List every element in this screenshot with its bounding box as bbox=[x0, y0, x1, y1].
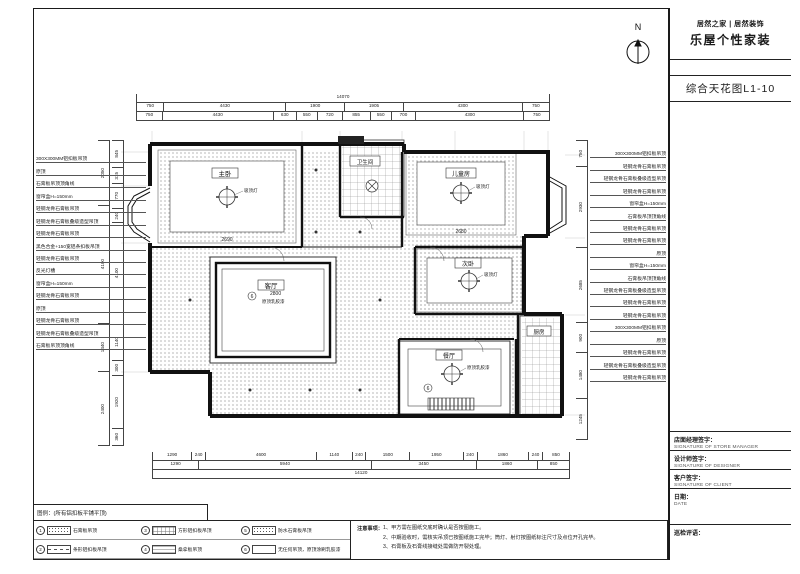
dimension-segment: 900 bbox=[576, 322, 587, 352]
legend-item: 1 石膏板吊顶 bbox=[34, 521, 139, 540]
legend-number: 2 bbox=[36, 545, 45, 554]
dimension-segment: 3450 bbox=[371, 461, 476, 469]
signature-box: 店面经理签字： SIGNATURE OF STORE MANAGER bbox=[670, 431, 791, 450]
dimension-segment: 2685 bbox=[576, 247, 587, 322]
room-dim: 2690 bbox=[221, 237, 232, 243]
dimension-segment: 700 bbox=[391, 112, 415, 120]
legend: 1 石膏板吊顶 2 条形铝扣板吊顶 3 方形铝扣板吊顶 4 桑拿板吊顶 5 bbox=[34, 521, 351, 559]
ceiling-labels-right: 300X300MM铝扣板吊顶轻钢龙骨石膏板吊顶轻钢龙骨石膏板叠级造型吊顶轻钢龙骨… bbox=[590, 146, 666, 382]
title-block-blank-area bbox=[670, 102, 791, 431]
legend-title: 图例：(所有铝扣板平铺平顶) bbox=[33, 504, 208, 521]
ceiling-label: 黑色合金+150宽铝条扣板吊顶 bbox=[36, 238, 146, 250]
signature-label-cn: 设计师签字： bbox=[674, 454, 787, 463]
ceiling-label: 轻钢龙骨石膏板吊顶 bbox=[590, 183, 666, 195]
legend-swatch-icon bbox=[252, 545, 276, 554]
legend-label: 桑拿板吊顶 bbox=[178, 546, 202, 553]
dimension-segment: 4300 bbox=[403, 103, 522, 111]
dimension-segment: 5940 bbox=[198, 461, 370, 469]
dimension-segment: 550 bbox=[370, 112, 391, 120]
legend-swatch-icon bbox=[47, 545, 71, 554]
note-line: 2、中期验收时，需核实吊顶已按图纸施工完毕；筒灯、射灯按图纸标注尺寸及点位开孔完… bbox=[383, 534, 663, 544]
logo: 居然之家 | 居然装饰 乐屋个性家装 bbox=[670, 8, 791, 60]
dim-chain-row: 129024046001140240150019502401860240850 bbox=[152, 452, 570, 461]
ceiling-label: 轻钢龙骨石膏板吊顶 bbox=[590, 295, 666, 307]
signature-boxes: 店面经理签字： SIGNATURE OF STORE MANAGER 设计师签字… bbox=[670, 431, 791, 560]
dimension-segment: 14070 bbox=[136, 94, 550, 102]
room-name: 主卧 bbox=[219, 169, 233, 178]
dimension-segment: 300 bbox=[112, 360, 123, 375]
signature-box: 设计师签字： SIGNATURE OF DESIGNER bbox=[670, 450, 791, 469]
dim-total-row: 14120 bbox=[152, 470, 570, 479]
dimension-segment: 240 bbox=[191, 452, 205, 460]
room-name: 厨房 bbox=[533, 328, 545, 336]
ceiling-label: 300X300MM铝扣板吊顶 bbox=[36, 151, 146, 163]
dimension-segment: 750 bbox=[136, 103, 163, 111]
signature-box: 客户签字： SIGNATURE OF CLIENT bbox=[670, 469, 791, 488]
legend-label: 方形铝扣板吊顶 bbox=[178, 527, 212, 534]
ceiling-label: 原顶 bbox=[36, 163, 146, 175]
legend-number: 4 bbox=[141, 545, 150, 554]
notes-heading: 注意事项： bbox=[357, 525, 383, 535]
signature-label-cn: 客户签字： bbox=[674, 473, 787, 482]
dimension-segment: 1140 bbox=[316, 452, 352, 460]
legend-swatch-icon bbox=[47, 526, 71, 535]
dimensions-right: 7502930268590014801245 bbox=[576, 140, 588, 440]
dim-chain-row: 7504430190019054300750 bbox=[136, 103, 550, 112]
dimension-segment: 360 bbox=[112, 428, 123, 446]
signature-label-cn: 日期： bbox=[674, 492, 787, 501]
dimension-segment: 4430 bbox=[162, 112, 273, 120]
signature-label-en: DATE bbox=[674, 502, 787, 507]
signature-label-cn: 店面经理签字： bbox=[674, 435, 787, 444]
ceiling-label: 窗帘盒H=150mm bbox=[36, 275, 146, 287]
legend-item: 4 桑拿板吊顶 bbox=[139, 540, 239, 559]
dimensions-bottom: 129024046001140240150019502401860240850 … bbox=[152, 452, 570, 479]
dim-chain-row: 1290594034501860850 bbox=[152, 461, 570, 470]
lamp-label: 吸顶灯 bbox=[484, 271, 498, 278]
lamp-label: 吸顶灯 bbox=[476, 183, 490, 190]
ceiling-label: 窗帘盒H=150mm bbox=[590, 196, 666, 208]
dimension-segment: 1950 bbox=[409, 452, 462, 460]
dimension-segment: 750 bbox=[522, 103, 550, 111]
ceiling-label: 轻钢龙骨石膏板吊顶 bbox=[36, 313, 146, 325]
ceiling-label: 反光灯槽 bbox=[36, 263, 146, 275]
room-name: 次卧 bbox=[462, 260, 474, 268]
ceiling-label: 轻钢龙骨石膏板吊顶 bbox=[590, 370, 666, 382]
ceiling-label: 轻钢龙骨石膏板吊顶 bbox=[36, 201, 146, 213]
dimension-segment: 4300 bbox=[415, 112, 523, 120]
compass-needle-icon bbox=[635, 40, 641, 64]
dimension-segment: 1245 bbox=[576, 398, 587, 440]
dimension-segment: 1290 bbox=[152, 452, 191, 460]
signature-box: 巡检评语： bbox=[670, 524, 791, 560]
ceiling-label: 轻钢龙骨石膏板叠级造型吊顶 bbox=[590, 171, 666, 183]
ceiling-label: 轻钢龙骨石膏板叠级造型吊顶 bbox=[36, 325, 146, 337]
legend-label: 防水石膏板吊顶 bbox=[278, 527, 312, 534]
ceiling-label: 轻钢龙骨石膏板吊顶 bbox=[36, 251, 146, 263]
legend-number: 6 bbox=[241, 545, 250, 554]
legend-item: 6 无任何吊顶，原顶涂刷乳胶漆 bbox=[239, 540, 350, 559]
dimension-segment: 4600 bbox=[205, 452, 316, 460]
legend-label: 条形铝扣板吊顶 bbox=[73, 546, 107, 553]
ceiling-label: 原顶 bbox=[36, 300, 146, 312]
ceiling-label: 原顶 bbox=[590, 332, 666, 344]
radiator-icon bbox=[428, 398, 474, 410]
exhaust-fan-icon bbox=[366, 180, 378, 192]
ceiling-label: 原顶 bbox=[590, 245, 666, 257]
legend-label: 石膏板吊顶 bbox=[73, 527, 97, 534]
legend-label: 无任何吊顶，原顶涂刷乳胶漆 bbox=[278, 546, 340, 553]
dimension-segment: 2930 bbox=[576, 166, 587, 247]
dimension-segment: 750 bbox=[523, 112, 550, 120]
legend-swatch-icon bbox=[252, 526, 276, 535]
dimension-segment: 240 bbox=[463, 452, 477, 460]
dimension-segment: 750 bbox=[136, 112, 162, 120]
dimension-segment: 1920 bbox=[112, 375, 123, 428]
dimension-segment: 630 bbox=[273, 112, 296, 120]
ceiling-label: 轻钢龙骨石膏板吊顶 bbox=[36, 288, 146, 300]
legend-number: 5 bbox=[241, 526, 250, 535]
north-label: N bbox=[635, 22, 642, 32]
room-dim: 2680 bbox=[455, 229, 466, 235]
ceiling-label: 轻钢龙骨石膏板叠级造型吊顶 bbox=[590, 283, 666, 295]
ceiling-hatch-areas bbox=[152, 140, 562, 416]
room-dim: 2800 bbox=[270, 291, 281, 297]
ceiling-labels-left: 300X300MM铝扣板吊顶原顶石膏板吊顶顶角线窗帘盒H=150mm轻钢龙骨石膏… bbox=[36, 151, 146, 350]
north-arrow: N bbox=[622, 20, 654, 76]
dimension-segment: 2400 bbox=[98, 371, 109, 446]
dimension-segment: 14120 bbox=[152, 470, 570, 478]
dim-chain-row: 75044306305507208555507004300750 bbox=[136, 112, 550, 121]
ceiling-label: 轻钢龙骨石膏板吊顶 bbox=[590, 307, 666, 319]
ceiling-label: 300X300MM铝扣板吊顶 bbox=[590, 320, 666, 332]
dimension-segment: 1860 bbox=[476, 461, 538, 469]
floor-plan-canvas: 主卧 卫生间 儿童房 次卧 客厅 餐厅 厨房 吸顶灯 吸顶灯 吸顶灯 原顶乳胶漆… bbox=[118, 128, 623, 468]
signature-box: 日期： DATE bbox=[670, 488, 791, 524]
legend-item: 5 防水石膏板吊顶 bbox=[239, 521, 350, 540]
ceiling-label: 窗帘盒H=150mm bbox=[590, 258, 666, 270]
ceiling-label: 轻钢龙骨石膏板吊顶 bbox=[36, 226, 146, 238]
ceiling-label: 轻钢龙骨石膏板叠级造型吊顶 bbox=[36, 213, 146, 225]
dimension-segment: 4430 bbox=[163, 103, 285, 111]
legend-number: 3 bbox=[141, 526, 150, 535]
dimension-segment: 1290 bbox=[152, 461, 198, 469]
dimension-segment: 850 bbox=[542, 452, 570, 460]
note-line: 1、甲方需在图纸交底时确认是否按图施工。 bbox=[383, 524, 663, 534]
drawing-title: 综合天花图L1-10 bbox=[670, 76, 791, 102]
signature-label-cn: 巡检评语： bbox=[674, 528, 787, 537]
title-block-spacer-box bbox=[670, 60, 791, 76]
ceiling-label: 石膏板吊顶顶角线 bbox=[36, 338, 146, 350]
dimension-segment: 1900 bbox=[285, 103, 344, 111]
legend-swatch-icon bbox=[152, 545, 176, 554]
ceiling-label: 轻钢龙骨石膏板叠级造型吊顶 bbox=[590, 357, 666, 369]
ceiling-label: 轻钢龙骨石膏板吊顶 bbox=[590, 221, 666, 233]
legend-ref-marker: 6 bbox=[251, 294, 254, 300]
room-name: 卫生间 bbox=[357, 158, 374, 166]
notes: 注意事项： 1、甲方需在图纸交底时确认是否按图施工。2、中期验收时，需核实吊顶已… bbox=[351, 521, 667, 559]
legend-ref-marker: 6 bbox=[427, 386, 430, 392]
ceiling-note: 原顶乳胶漆 bbox=[467, 364, 490, 371]
drawing-sheet: N bbox=[0, 0, 800, 574]
brand-logo-text: 居然之家 | 居然装饰 bbox=[697, 19, 764, 29]
ceiling-label: 轻钢龙骨石膏板吊顶 bbox=[590, 158, 666, 170]
ceiling-label: 石膏板吊顶顶角线 bbox=[590, 208, 666, 220]
title-block: 居然之家 | 居然装饰 乐屋个性家装 综合天花图L1-10 店面经理签字： SI… bbox=[668, 8, 791, 560]
dimension-segment: 855 bbox=[342, 112, 370, 120]
room-name: 儿童房 bbox=[452, 170, 470, 178]
legend-item: 3 方形铝扣板吊顶 bbox=[139, 521, 239, 540]
ceiling-label: 300X300MM铝扣板吊顶 bbox=[590, 146, 666, 158]
ceiling-label: 轻钢龙骨石膏板吊顶 bbox=[590, 345, 666, 357]
dimension-segment: 750 bbox=[576, 140, 587, 166]
notes-lines: 1、甲方需在图纸交底时确认是否按图施工。2、中期验收时，需核实吊顶已按图纸施工完… bbox=[383, 524, 663, 553]
ceiling-label: 轻钢龙骨石膏板吊顶 bbox=[590, 233, 666, 245]
dimension-segment: 1860 bbox=[477, 452, 529, 460]
dimension-segment: 550 bbox=[296, 112, 317, 120]
ceiling-label: 石膏板吊顶顶角线 bbox=[590, 270, 666, 282]
ceiling-note: 原顶乳胶漆 bbox=[262, 298, 285, 305]
dimension-segment: 850 bbox=[537, 461, 570, 469]
brand-sub-text: 乐屋个性家装 bbox=[690, 31, 771, 48]
room-name: 客厅 bbox=[265, 281, 279, 290]
dimension-segment: 720 bbox=[317, 112, 342, 120]
dim-total-row: 14070 bbox=[136, 94, 550, 103]
dimension-segment: 240 bbox=[528, 452, 542, 460]
note-line: 3、石膏板及石膏线接缝处需做防开裂处理。 bbox=[383, 543, 663, 553]
dimension-segment: 1480 bbox=[576, 352, 587, 398]
dimension-segment: 1500 bbox=[365, 452, 409, 460]
dimension-segment: 240 bbox=[352, 452, 366, 460]
dimensions-top: 14070 7504430190019054300750 75044306305… bbox=[136, 94, 550, 121]
dimension-segment: 1905 bbox=[344, 103, 403, 111]
room-name: 餐厅 bbox=[443, 352, 455, 360]
legend-number: 1 bbox=[36, 526, 45, 535]
lamp-label: 吸顶灯 bbox=[244, 187, 258, 194]
ceiling-label: 窗帘盒H=150mm bbox=[36, 188, 146, 200]
bottom-strip: 1 石膏板吊顶 2 条形铝扣板吊顶 3 方形铝扣板吊顶 4 桑拿板吊顶 5 bbox=[33, 520, 668, 560]
legend-swatch-icon bbox=[152, 526, 176, 535]
ceiling-label: 石膏板吊顶顶角线 bbox=[36, 176, 146, 188]
legend-item: 2 条形铝扣板吊顶 bbox=[34, 540, 139, 559]
